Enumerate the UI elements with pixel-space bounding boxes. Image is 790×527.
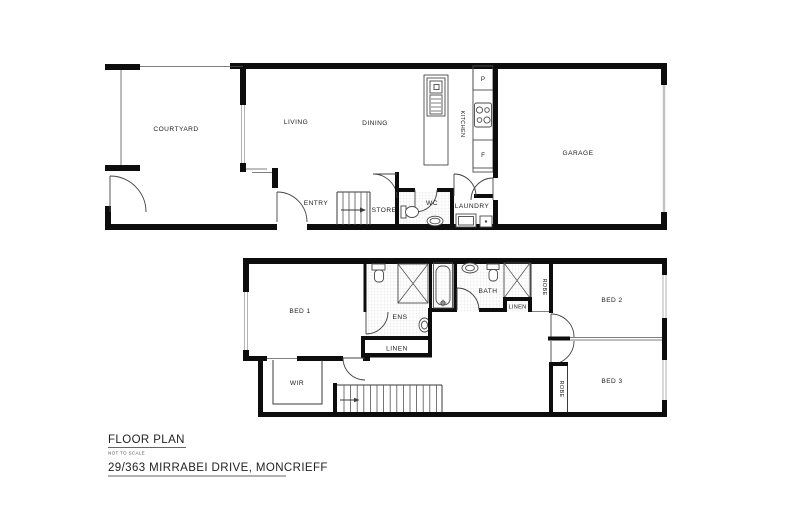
- upper-floor-plan: BED 1 WIR ENS LINEN BATH LINEN ROBE BED …: [243, 258, 667, 417]
- footer-scale-note: NOT TO SCALE: [108, 451, 145, 456]
- garage-wall: [493, 63, 498, 230]
- hall-bed2-wall: [549, 262, 553, 313]
- stairs-direction-arrow: [360, 208, 366, 213]
- room-label-bed2: BED 2: [601, 297, 622, 304]
- laundry-walls: [474, 194, 493, 198]
- bed3-door-swing: [551, 341, 574, 364]
- bed2-door-swing: [551, 314, 574, 337]
- footer-address: 29/363 MIRRABEI DRIVE, MONCRIEFF: [108, 462, 328, 474]
- room-label-laundry: LAUNDRY: [455, 203, 490, 210]
- room-label-store: STORE: [372, 207, 397, 214]
- bed2-bed3-wall: [548, 337, 662, 341]
- bed2-window: [663, 275, 666, 318]
- room-label-bed1: BED 1: [289, 308, 310, 315]
- pantry-label: P: [481, 76, 485, 83]
- store-wc-wall: [395, 172, 399, 228]
- room-label-bath: BATH: [479, 288, 498, 295]
- room-label-linen-bath: LINEN: [509, 305, 527, 311]
- floor-plan-drawing: COURTYARD LIVING DINING KITCHEN P F GARA…: [0, 0, 790, 527]
- room-label-garage: GARAGE: [563, 150, 594, 157]
- room-label-kitchen: KITCHEN: [459, 111, 465, 138]
- washer-icon: [480, 216, 492, 227]
- stair-wall: [333, 383, 337, 417]
- room-label-ens: ENS: [393, 314, 408, 321]
- bed1-south-wall: [243, 356, 370, 361]
- cooktop-icon: [475, 103, 492, 127]
- floor-plan-page: COURTYARD LIVING DINING KITCHEN P F GARA…: [0, 0, 790, 527]
- footer: FLOOR PLAN NOT TO SCALE 29/363 MIRRABEI …: [108, 434, 328, 476]
- toilet-icon: [401, 206, 419, 218]
- laundry-door-swing: [454, 174, 476, 196]
- living-west-wall: [240, 68, 246, 172]
- stairs-direction-arrow: [354, 398, 360, 402]
- ground-floor-plan: COURTYARD LIVING DINING KITCHEN P F GARA…: [105, 63, 667, 230]
- wc-basin-icon: [427, 216, 443, 226]
- bed3-window: [663, 360, 666, 400]
- ground-stairs: [337, 192, 370, 225]
- room-label-bed3: BED 3: [601, 378, 622, 385]
- room-label-linen-hall: LINEN: [386, 346, 408, 353]
- room-label-entry: ENTRY: [304, 200, 329, 207]
- courtyard-gate-door-swing: [110, 176, 146, 212]
- room-label-robe-bed2: ROBE: [541, 278, 547, 295]
- room-label-wir: WIR: [290, 380, 304, 387]
- bed1-door-swing: [343, 358, 365, 380]
- entry-door-swing: [277, 192, 307, 222]
- room-label-courtyard: COURTYARD: [153, 126, 198, 133]
- room-label-wc: WC: [426, 200, 438, 207]
- store-door-swing: [373, 174, 397, 198]
- room-label-dining: DINING: [362, 120, 388, 127]
- bath-basin-icon: [462, 263, 478, 273]
- fridge-label: F: [481, 152, 485, 159]
- upper-stairs: [337, 385, 442, 412]
- courtyard-sliding-door: [246, 169, 273, 173]
- room-label-living: LIVING: [284, 119, 308, 126]
- room-label-robe-bed3: ROBE: [558, 380, 564, 397]
- entry-wall-stub: [272, 168, 278, 188]
- kitchen-sink-icon: [427, 78, 445, 116]
- bed1-window: [245, 292, 248, 350]
- kitchen-island-bench: [424, 75, 448, 165]
- bath-toilet-icon: [487, 264, 499, 281]
- laundry-tub-icon: [456, 214, 476, 227]
- bed1-ens-wall: [364, 262, 367, 312]
- footer-title: FLOOR PLAN: [108, 434, 185, 446]
- ground-exterior-walls: [105, 63, 667, 230]
